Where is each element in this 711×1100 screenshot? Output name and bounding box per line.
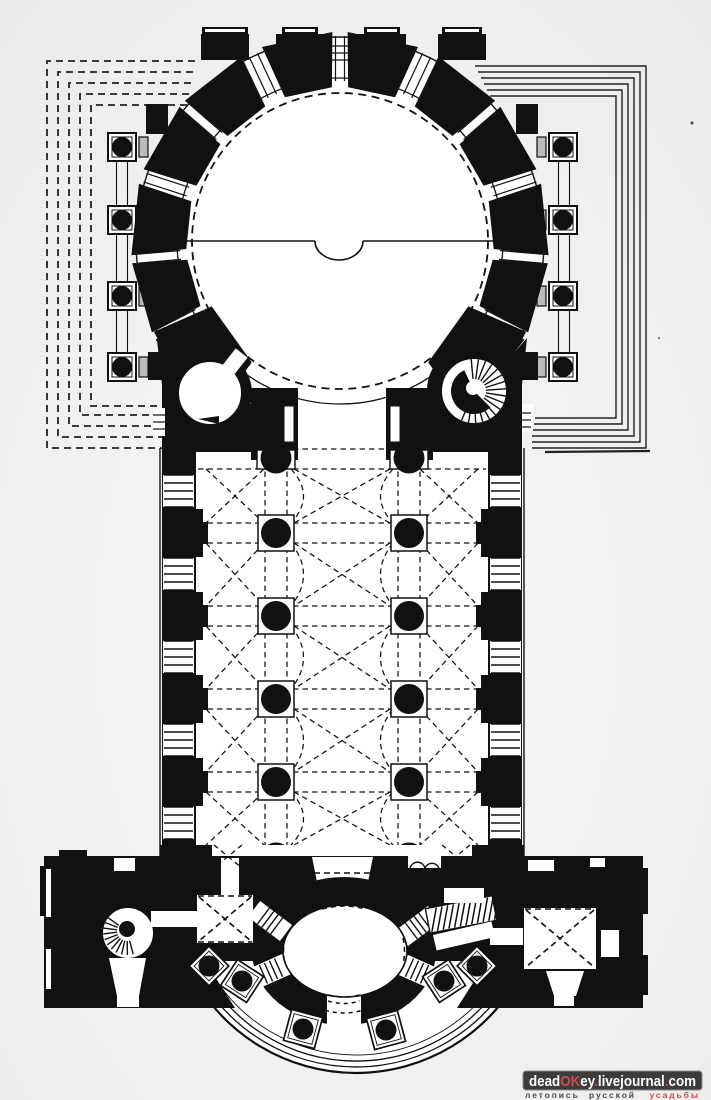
svg-text:летопись: летопись <box>525 1090 580 1100</box>
svg-text:русской: русской <box>589 1090 636 1100</box>
svg-text:усадьбы: усадьбы <box>649 1090 700 1100</box>
svg-text:deadOKey.livejournal.com: deadOKey.livejournal.com <box>529 1073 696 1090</box>
